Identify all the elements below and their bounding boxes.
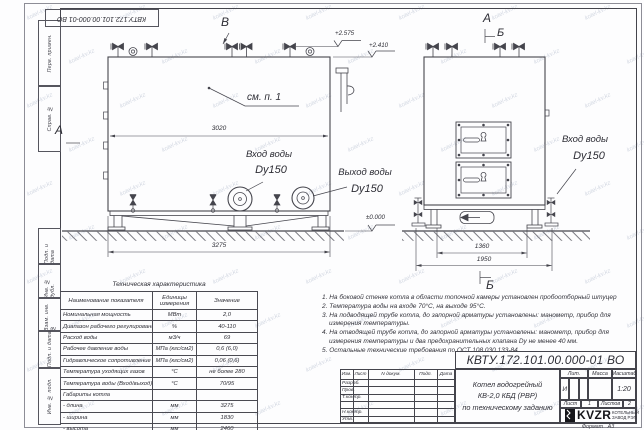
note-line: 2. Температура воды на входе 70°С, на вы… <box>322 303 636 312</box>
dim-3020: 3020 <box>199 126 239 133</box>
tech-table-row: Гидравлическое сопротивление котлаМПа (к… <box>60 356 258 367</box>
margin-box-vzam-inv: Взам. инв. № <box>38 297 61 332</box>
tech-table-header: Наименование показателя Единицы измерени… <box>60 292 258 310</box>
tb-lit-cell-2 <box>569 378 578 400</box>
tech-table-title: Техническая характеристика <box>60 281 258 288</box>
tech-table-cell: 0,6 (6,0) <box>197 344 258 355</box>
tech-table-cell: Габариты котла <box>60 390 153 401</box>
section-marker-b-bottom: Б <box>486 279 494 292</box>
kvzr-logo-caption: КОТЕЛЬНЫЙ ЗАВОД РЭП <box>612 410 639 421</box>
elevation-2410: +2.410 <box>369 43 388 50</box>
tb-row-utv: Утв. <box>342 417 353 422</box>
tech-table-row: Температура уходящих газов°Сне более 280 <box>60 367 258 378</box>
margin-box-podp-data-2: Подп. и дата <box>38 330 61 369</box>
tb-col-podp: Подп. <box>414 372 437 377</box>
tech-table-cell: - высота <box>60 424 153 430</box>
label-inlet-front: Вход воды <box>238 150 300 160</box>
tech-table-row: Рабочее давление водыМПа (кгс/см2)0,6 (6… <box>60 344 258 355</box>
tech-table-body: Номинальная мощностьМВт2,0Диапазон рабоч… <box>60 310 258 430</box>
tech-table-cell: °С <box>153 367 197 378</box>
label-outlet: Выход воды <box>332 168 398 178</box>
tech-table-header-value: Значение <box>197 292 258 310</box>
drawing-sheet: kotel-kv.kzkotel-kv.kzkotel-kv.kzkotel-k… <box>0 0 644 430</box>
tech-table-cell: - длина <box>60 401 153 412</box>
tech-table-cell: мм <box>153 401 197 412</box>
tb-col-data: Дата <box>437 372 455 377</box>
label-inlet-size-side: Dy150 <box>564 151 614 163</box>
tech-table-cell <box>197 390 258 401</box>
tech-table-row: Расход водым3/ч69 <box>60 333 258 344</box>
section-marker-a-front: А <box>55 124 63 137</box>
note-line: 1. На боковой стенке котла в области топ… <box>322 294 636 303</box>
tb-mass-value <box>588 378 612 400</box>
dim-1360: 1360 <box>462 244 502 251</box>
tb-lit-value: И <box>560 378 569 400</box>
tech-table-cell: Диапазон рабочего регулирования <box>60 321 153 332</box>
tech-table-cell: МПа (кгс/см2) <box>153 344 197 355</box>
notes-block: 1. На боковой стенке котла в области топ… <box>322 294 636 355</box>
margin-box-perv-primen: Перв. примен. <box>38 20 61 87</box>
titleblock-doc-number: КВТУ.172.101.00.000-01 ВО <box>455 351 636 369</box>
margin-box-podp-data-1: Подп. и дата <box>38 228 61 265</box>
tech-table-cell: 3275 <box>197 401 258 412</box>
tech-table-cell: МПа (кгс/см2) <box>153 356 197 367</box>
tech-table-row: - высотамм2460 <box>60 424 258 430</box>
tb-col-izm: Изм. <box>340 372 353 377</box>
callout-see-note-1: см. п. 1 <box>247 93 281 104</box>
tech-table-cell: м3/ч <box>153 333 197 344</box>
label-inlet-side: Вход воды <box>554 135 616 145</box>
tech-table-cell: 69 <box>197 333 258 344</box>
tech-table-cell: 2460 <box>197 424 258 430</box>
tb-scale-value: 1:20 <box>612 378 636 400</box>
tb-row-razrab: Разраб. <box>342 381 360 386</box>
top-stamp: КВТУ.172.101.00.000-01 ВО <box>45 9 159 27</box>
kvzr-logo-text: KVZR <box>577 408 611 422</box>
tech-table-row: Номинальная мощностьМВт2,0 <box>60 310 258 321</box>
tech-table-cell: Гидравлическое сопротивление котла <box>60 356 153 367</box>
tech-table-header-name: Наименование показателя <box>60 292 153 310</box>
tech-table-cell <box>153 390 197 401</box>
tech-table-cell: МВт <box>153 310 197 321</box>
tech-table-row: Диапазон рабочего регулирования%40-110 <box>60 321 258 332</box>
tech-table-row: Температура воды (Вход/выход)°С70/95 <box>60 378 258 389</box>
tech-table: Наименование показателя Единицы измерени… <box>60 291 258 430</box>
titleblock-name-line3: по техническому заданию <box>462 402 552 413</box>
titleblock-name-line2: КВ-2,0 КБД (РВР) <box>478 390 537 401</box>
tech-table-cell: - ширина <box>60 413 153 424</box>
tb-col-ndocum: N докум. <box>368 372 414 377</box>
kvzr-logo-icon <box>565 409 575 422</box>
front-view-linework <box>104 43 354 230</box>
tech-table-cell: мм <box>153 424 197 430</box>
tech-table-cell: не более 280 <box>197 367 258 378</box>
ground-hatch <box>62 231 590 241</box>
tech-table-cell: Температура воды (Вход/выход) <box>60 378 153 389</box>
tech-table-cell: Рабочее давление воды <box>60 344 153 355</box>
label-outlet-size: Dy150 <box>342 184 392 196</box>
tech-table-cell: Температура уходящих газов <box>60 367 153 378</box>
tb-lit-header: Лит. <box>560 369 588 378</box>
tb-mass-header: Масса <box>588 369 612 378</box>
tech-table-header-units: Единицы измерения <box>153 292 197 310</box>
margin-box-sprav-n: Справ. № <box>38 85 61 152</box>
tb-row-tkontr: Т.контр. <box>342 395 362 400</box>
dim-3275: 3275 <box>199 243 239 250</box>
tech-table-cell: 1830 <box>197 413 258 424</box>
top-stamp-number: КВТУ.172.101.00.000-01 ВО <box>57 15 146 22</box>
margin-box-inv-dubl: Инв. № дубл. <box>38 263 61 299</box>
tb-col-list: Лист <box>353 372 368 377</box>
side-view-linework <box>412 43 558 228</box>
titleblock-name-line1: Котел водогрейный <box>473 379 542 390</box>
section-marker-b-front: В <box>221 16 229 29</box>
titleblock-name: Котел водогрейный КВ-2,0 КБД (РВР) по те… <box>455 369 560 423</box>
tech-table-cell: Номинальная мощность <box>60 310 153 321</box>
section-marker-b-side: Б <box>497 28 504 40</box>
tech-table-row: - ширинамм1830 <box>60 413 258 424</box>
tech-table-cell: мм <box>153 413 197 424</box>
tech-table-cell: 70/95 <box>197 378 258 389</box>
tech-table-cell: 40-110 <box>197 321 258 332</box>
tb-sheets-value: 2 <box>623 400 636 408</box>
tech-table-cell: 2,0 <box>197 310 258 321</box>
elevation-2575: +2.575 <box>335 31 354 38</box>
note-line: 3. На подводящей трубе котла, до запорно… <box>322 312 636 330</box>
tb-lit-cell-3 <box>579 378 588 400</box>
tech-table-cell: °С <box>153 378 197 389</box>
tech-table-row: Габариты котла <box>60 390 258 401</box>
format-label: Формат А3 <box>560 424 636 430</box>
dim-1950: 1950 <box>464 257 504 264</box>
note-line: 4. На отводящей трубе котла, до запорной… <box>322 329 636 347</box>
tb-scale-header: Масштаб <box>612 369 636 378</box>
label-inlet-size-front: Dy150 <box>246 165 296 177</box>
elevation-0000: ±0.000 <box>366 215 385 222</box>
tech-table-cell: 0,06 (0,6) <box>197 356 258 367</box>
tech-table-row: - длинамм3275 <box>60 401 258 412</box>
section-marker-a-side: А <box>483 12 491 25</box>
margin-box-inv-podl: Инв. № подл. <box>38 367 61 425</box>
tech-table-cell: Расход воды <box>60 333 153 344</box>
tech-table-cell: % <box>153 321 197 332</box>
